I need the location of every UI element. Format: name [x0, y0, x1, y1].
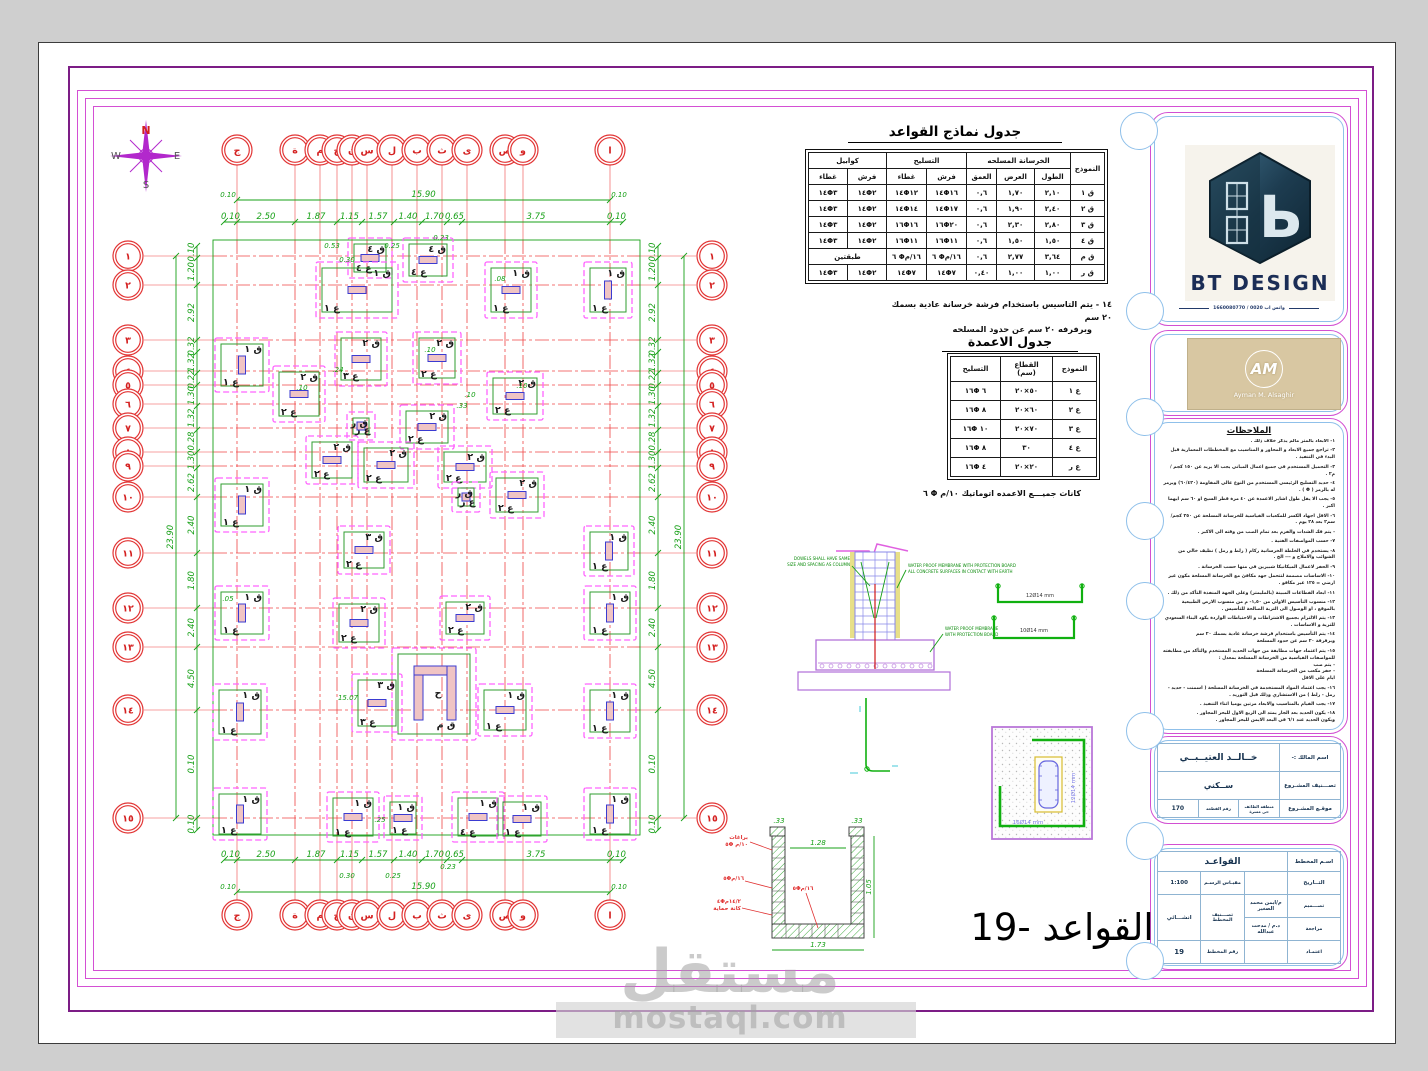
note-item: ١- الابعاد بالمتر مالم يذكر خلاف ذلك . — [1163, 439, 1335, 446]
svg-text:2.40: 2.40 — [187, 618, 197, 637]
svg-text:ث: ث — [437, 911, 447, 922]
table-row: ع ٣٧٠×٢٠١٦Φ ١٠ — [951, 420, 1097, 439]
svg-text:ب: ب — [412, 911, 422, 922]
table-cell: ٠,٦ — [967, 249, 997, 265]
table-cell: ١٦Φ١١ — [927, 233, 967, 249]
svg-text:0.25: 0.25 — [385, 872, 401, 880]
table-cell: ١٦Φ ٦ — [951, 382, 1001, 401]
svg-text:2.40: 2.40 — [648, 618, 658, 637]
table-cell: ٠,٦ — [967, 185, 997, 201]
column-header: فرش — [848, 169, 887, 185]
svg-text:ع ٢: ع ٢ — [281, 407, 297, 418]
grid-bubble: و — [508, 135, 538, 165]
svg-text:0.30: 0.30 — [339, 872, 355, 880]
grid-bubble: ٣ — [697, 325, 727, 355]
svg-text:١٠: ١٠ — [122, 493, 134, 504]
svg-text:ع ١: ع ١ — [592, 825, 608, 836]
owner-label: اسم المالك :- — [1280, 744, 1341, 772]
note-item: ٧- حسب المواصفات الفنية . — [1163, 539, 1335, 546]
table-cell: ٣,٦٤ — [1035, 249, 1071, 265]
svg-text:ق ٢: ق ٢ — [436, 338, 454, 349]
watermark-arabic: مستقل — [598, 942, 862, 1002]
svg-text:ث: ث — [437, 146, 447, 157]
grid-bubble: ١٣ — [113, 632, 143, 662]
table-cell: ١٤Φ٣ — [809, 233, 848, 249]
svg-text:ق ١: ق ١ — [611, 794, 629, 805]
table-cell: ١٦Φ٢٠ — [927, 217, 967, 233]
svg-text:0.10: 0.10 — [648, 243, 658, 262]
divider-line — [1179, 308, 1209, 309]
column-header: القطاع(سم) — [1001, 357, 1053, 382]
svg-text:ق ١: ق ١ — [244, 484, 262, 495]
svg-text:12Ø14 mm: 12Ø14 mm — [1026, 592, 1054, 599]
table-cell: ١٤Φ٧ — [927, 265, 967, 281]
table-cell: طبقتين — [809, 249, 887, 265]
svg-text:1.30: 1.30 — [187, 451, 197, 470]
svg-text:.25: .25 — [374, 816, 386, 824]
svg-text:ع ١: ع ١ — [592, 723, 608, 734]
plan-no-label: رقم المخطط — [1201, 941, 1244, 964]
table-cell: ٥٠×٢٠ — [1001, 382, 1053, 401]
notes-title: الملاحظات — [1151, 426, 1347, 436]
svg-text:ع ٢: ع ٢ — [495, 405, 511, 416]
foundation-pad: ق ٢ع ٢ — [306, 436, 358, 484]
table-cell: ١٤Φ٢ — [848, 265, 887, 281]
svg-text:0.22: 0.22 — [187, 370, 197, 389]
table-row: ع ٤٣٠١٦Φ ٨ — [951, 439, 1097, 458]
svg-text:ق ١: ق ١ — [522, 802, 540, 813]
grid-bubble: ج — [222, 135, 252, 165]
reviewer-name: د.م / مدحت عبدالله — [1244, 918, 1287, 941]
svg-text:2.40: 2.40 — [648, 516, 658, 535]
svg-text:2.62: 2.62 — [648, 473, 658, 492]
table-cell: ق ٣ — [1071, 217, 1105, 233]
foundations-table-title: جدول نماذج القواعد — [848, 124, 1062, 143]
table-cell: ١٦Φ ١٠ — [951, 420, 1001, 439]
svg-text:ق م: ق م — [437, 720, 456, 731]
grid-bubble: ١١ — [697, 538, 727, 568]
grid-bubble: ج — [222, 900, 252, 930]
table-cell: ١٦Φ ٨ — [951, 401, 1001, 420]
svg-text:2.92: 2.92 — [648, 303, 658, 322]
svg-text:0.10: 0.10 — [187, 815, 197, 834]
svg-text:ق ١: ق ١ — [242, 690, 260, 701]
svg-text:ق ٤: ق ٤ — [428, 244, 446, 255]
owner-info-table: اسم المالك :- خــالــد العتيــبــي تصـــ… — [1157, 743, 1341, 818]
svg-text:ع ١: ع ١ — [335, 827, 351, 838]
grid-bubble: ١ — [697, 241, 727, 271]
svg-text:ع ١: ع ١ — [223, 625, 239, 636]
svg-text:ع ٢: ع ٢ — [366, 473, 382, 484]
table-cell: ١,٠٠ — [1035, 265, 1071, 281]
table-cell: ٦ Φ١٦/م — [927, 249, 967, 265]
svg-text:ع ٢: ع ٢ — [408, 434, 424, 445]
svg-text:ق ١: ق ١ — [373, 268, 391, 279]
svg-text:3.75: 3.75 — [527, 850, 546, 860]
svg-text:1.32: 1.32 — [187, 353, 197, 372]
svg-text:ق ٢: ق ٢ — [467, 452, 485, 463]
note-item: ٨- يستخدم في الخلطة الخرسانية ركام ( زلط… — [1163, 549, 1335, 563]
note-item: ١٧- يجب القيام بالمناسيب والابعاد مرتين … — [1163, 702, 1335, 709]
divider-line — [1289, 308, 1319, 309]
column-header: التسليح — [951, 357, 1001, 382]
svg-text:ق ١: ق ١ — [512, 268, 530, 279]
svg-text:ح: ح — [435, 688, 442, 699]
svg-text:W: W — [111, 151, 121, 162]
svg-text:4.50: 4.50 — [648, 669, 658, 688]
bt-logo-box: Ь BT DESIGN — [1185, 145, 1335, 301]
svg-text:N: N — [141, 124, 150, 137]
svg-text:١: ١ — [125, 252, 131, 263]
foundation-note-14: ١٤ - يتم التاسيس باستخدام فرشة خرسانة عا… — [888, 298, 1112, 336]
bt-phone-row: واتس اب 0020 / 1660080770 — [1159, 306, 1339, 311]
compass-icon: NWES — [110, 120, 182, 192]
foundation-pad: حق م — [392, 648, 476, 740]
svg-text:0.10: 0.10 — [220, 191, 236, 199]
am-initials: AM — [1251, 360, 1278, 378]
svg-text:0.32: 0.32 — [187, 337, 197, 356]
am-logo-panel: AM Ayman M. Alsaghir — [1150, 330, 1348, 416]
column-header: العمق — [967, 169, 997, 185]
svg-text:.33: .33 — [456, 402, 467, 410]
svg-text:ق ١: ق ١ — [479, 798, 497, 809]
svg-text:ع ١: ع ١ — [592, 625, 608, 636]
svg-text:س: س — [360, 911, 373, 922]
svg-text:1.32: 1.32 — [648, 409, 658, 428]
foundation-pad: ق ٣ع ٣ — [352, 674, 402, 732]
table-cell: ١٤Φ١٦ — [927, 185, 967, 201]
scale-label: مقيـاس الرسـم — [1201, 872, 1244, 895]
note-item: ٩- الحفر لاعمال الميكانيكا شبيرين في منه… — [1163, 565, 1335, 572]
project-location-value: منطقة الطائف حي مسرة — [1239, 800, 1280, 818]
svg-text:0.10: 0.10 — [187, 243, 197, 262]
svg-text:1.20: 1.20 — [648, 262, 658, 281]
svg-text:ع ١: ع ١ — [221, 725, 237, 736]
svg-text:٦: ٦ — [709, 400, 715, 411]
svg-text:1.57: 1.57 — [369, 850, 389, 860]
svg-text:4.50: 4.50 — [187, 669, 197, 688]
svg-text:ع ٢: ع ٢ — [346, 559, 362, 570]
svg-text:0.10: 0.10 — [648, 755, 658, 774]
svg-text:1.32: 1.32 — [187, 409, 197, 428]
foundations-table: النموذجالخرسانة المسلحهالتسليحكوابيلالطو… — [808, 152, 1105, 281]
foundation-pad: ق ١ع ١ — [215, 338, 269, 392]
foundation-pad: ق ٢ع ٢ — [490, 472, 544, 518]
plan-info-panel: اسـم المخطط القواعـد التــاريخ مقيـاس ال… — [1150, 844, 1348, 970]
svg-text:ق ١: ق ١ — [397, 802, 415, 813]
table-row: ع ر٢٠×٢٠١٦Φ ٤ — [951, 458, 1097, 477]
svg-text:0.10: 0.10 — [611, 191, 627, 199]
svg-text:ق ٢: ق ٢ — [519, 478, 537, 489]
note-item: ١٠- الاساسات مصممة لتتحمل جهد مكافئ مع ا… — [1163, 574, 1335, 588]
svg-text:ا: ا — [608, 146, 611, 157]
column-header: غطاء — [809, 169, 848, 185]
svg-text:23.90: 23.90 — [674, 525, 684, 549]
svg-text:ع ١: ع ١ — [392, 825, 408, 836]
svg-text:ق ١: ق ١ — [609, 532, 627, 543]
svg-text:١٣: ١٣ — [122, 643, 134, 654]
scallop-circle — [1120, 112, 1158, 150]
svg-text:٩: ٩ — [125, 462, 131, 473]
grid-bubble: ١١ — [113, 538, 143, 568]
column-header: النموذج — [1071, 153, 1105, 185]
svg-text:0.10: 0.10 — [220, 883, 236, 891]
scallop-circle — [1126, 942, 1164, 980]
svg-text:WATER PROOF MEMBRANE: WATER PROOF MEMBRANE — [945, 626, 999, 631]
tank-section-detail: 1.281.051.73.33.33براغات٥Φ ١٠/م٥Φ١٦/م٤Φ١… — [713, 817, 874, 950]
note-item: ١٥- يتم اعتماد جهات مطابقة من جهات الحدي… — [1163, 649, 1335, 683]
svg-text:و: و — [519, 146, 526, 157]
column-header: كوابيل — [809, 153, 887, 169]
svg-text:1.87: 1.87 — [307, 850, 327, 860]
svg-text:١٥: ١٥ — [706, 814, 718, 825]
review-label: مراجعة — [1288, 918, 1341, 941]
svg-text:10Ø14 mm: 10Ø14 mm — [1020, 627, 1048, 634]
svg-text:ل: ل — [388, 146, 396, 157]
svg-text:٦: ٦ — [125, 400, 131, 411]
foundation-pad: ق ١ع ١ — [327, 792, 379, 842]
date-label: التــاريخ — [1288, 872, 1341, 895]
svg-text:ع ٢: ع ٢ — [498, 503, 514, 514]
date-value — [1244, 872, 1287, 895]
table-cell: ٠,٤٠ — [967, 265, 997, 281]
table-cell: ع ٢ — [1053, 401, 1097, 420]
table-row: ق ١٢,١٠١,٧٠٠,٦١٤Φ١٦١٤Φ١٢١٤Φ٢١٤Φ٣ — [809, 185, 1105, 201]
svg-text:0.53: 0.53 — [324, 242, 340, 250]
svg-text:0.10: 0.10 — [607, 212, 626, 222]
table-cell: ق ٤ — [1071, 233, 1105, 249]
svg-text:0.32: 0.32 — [648, 337, 658, 356]
foundation-pad: ق ٢ع ٢ — [358, 442, 414, 488]
svg-text:ق ٢: ق ٢ — [362, 338, 380, 349]
grid-bubble: ١٥ — [113, 803, 143, 833]
foundation-pad: ق ٢ع ٢ — [333, 598, 385, 648]
svg-text:.33: .33 — [773, 817, 784, 825]
grid-bubble: ١٥ — [697, 803, 727, 833]
svg-text:١٢: ١٢ — [122, 604, 134, 615]
svg-text:0.30: 0.30 — [339, 256, 355, 264]
svg-text:ب: ب — [412, 146, 422, 157]
svg-text:٧: ٧ — [125, 424, 131, 435]
svg-text:1.40: 1.40 — [399, 212, 418, 222]
plan-info-table: اسـم المخطط القواعـد التــاريخ مقيـاس ال… — [1157, 851, 1341, 964]
svg-text:ع ١: ع ١ — [592, 303, 608, 314]
scallop-circle — [1126, 292, 1164, 330]
foundation-pad: ق ١ع ١ — [213, 788, 267, 840]
svg-text:ى: ى — [463, 146, 472, 157]
grid-bubble: ٩ — [697, 451, 727, 481]
column-header: الطول — [1035, 169, 1071, 185]
table-cell: ١٤Φ٢ — [848, 217, 887, 233]
grid-bubble: ١٣ — [697, 632, 727, 662]
svg-text:12Ø14 mm: 12Ø14 mm — [1070, 773, 1077, 804]
columns-table: النموذجالقطاع(سم)التسليحع ١٥٠×٢٠١٦Φ ٦ع ٢… — [950, 356, 1097, 477]
svg-text:ع ٢: ع ٢ — [341, 633, 357, 644]
am-name: Ayman M. Alsaghir — [1234, 391, 1294, 399]
svg-text:ع ١: ع ١ — [223, 517, 239, 528]
svg-text:ق ١: ق ١ — [244, 344, 262, 355]
parcel-label: رقم القطعة — [1198, 800, 1239, 818]
table-cell: ٧٠×٢٠ — [1001, 420, 1053, 439]
table-cell: ٦٠×٢٠ — [1001, 401, 1053, 420]
note-item: ١٢- منسوب التأسيس الاولي من ١,٥٠- م من م… — [1163, 600, 1335, 614]
table-cell: ١٤Φ٧ — [887, 265, 927, 281]
svg-text:ق ٢: ق ٢ — [360, 604, 378, 615]
grid-bubble: ١٢ — [113, 593, 143, 623]
svg-text:ق ٣: ق ٣ — [377, 680, 395, 691]
svg-text:1.30: 1.30 — [648, 451, 658, 470]
svg-text:1.15: 1.15 — [340, 850, 359, 860]
svg-text:DOWELS SHALL HAVE SAME: DOWELS SHALL HAVE SAME — [794, 556, 851, 561]
designer-name: م/ايمن محمد الصغير — [1244, 895, 1287, 918]
svg-text:ع ٣: ع ٣ — [360, 717, 376, 728]
svg-text:2.62: 2.62 — [187, 473, 197, 492]
note-item: ٢- تراجع جميع الابعاد و المحاور و المناس… — [1163, 448, 1335, 462]
table-row: ع ١٥٠×٢٠١٦Φ ٦ — [951, 382, 1097, 401]
foundation-pads: ق ٤ع ٤ق ٤ع ٤ق ١ع ١ق ١ع ١ق ١ع ١ق ١ع ١ق ٢ع… — [213, 238, 636, 842]
svg-text:2.50: 2.50 — [257, 850, 276, 860]
svg-text:0.10: 0.10 — [648, 815, 658, 834]
svg-text:1.70: 1.70 — [425, 850, 444, 860]
column-header: الخرسانة المسلحه — [967, 153, 1071, 169]
svg-text:.10: .10 — [464, 391, 476, 399]
svg-text:ق ٤: ق ٤ — [367, 244, 385, 255]
svg-text:ع ٢: ع ٢ — [314, 469, 330, 480]
svg-text:ع ١: ع ١ — [493, 303, 509, 314]
grid-bubble: ١٢ — [697, 593, 727, 623]
svg-text:0.23: 0.23 — [433, 234, 449, 242]
svg-text:3.75: 3.75 — [527, 212, 546, 222]
svg-text:١٣: ١٣ — [706, 643, 718, 654]
table-cell: ع ٤ — [1053, 439, 1097, 458]
foundation-pad: ق ١ع ١ — [584, 262, 632, 318]
svg-text:.08: .08 — [494, 275, 506, 283]
design-label: تصـــميم — [1288, 895, 1341, 918]
grid-bubble: و — [508, 900, 538, 930]
project-class-label: تصـــنيف المشـروع — [1280, 772, 1341, 800]
notes-list: ١- الابعاد بالمتر مالم يذكر خلاف ذلك .٢-… — [1163, 439, 1335, 727]
table-cell: ق ١ — [1071, 185, 1105, 201]
svg-text:15.07: 15.07 — [338, 694, 359, 702]
table-cell: ٠,٦ — [967, 217, 997, 233]
grid-bubble: ١ — [113, 241, 143, 271]
svg-text:.05: .05 — [222, 595, 234, 603]
foundation-pad: ق رع ر — [347, 412, 375, 440]
note-item: ١١- ابعاد القطاعات المبينة (بالمليمتر) و… — [1163, 591, 1335, 598]
column-header: التسليح — [887, 153, 967, 169]
note-item: ٥- يجب الا يقل طول اشاير الاعمدة عن ٤٠ م… — [1163, 497, 1335, 511]
scallop-circle — [1126, 582, 1164, 620]
note-item: ١٤- يتم التأسيس باستخدام فرشة خرسانة عاد… — [1163, 632, 1335, 646]
table-row: ع ٢٦٠×٢٠١٦Φ ٨ — [951, 401, 1097, 420]
svg-text:1.20: 1.20 — [187, 262, 197, 281]
plan-class-label: تصـــنيف المخطط — [1201, 895, 1244, 941]
svg-text:ة: ة — [292, 911, 298, 922]
svg-text:0.25: 0.25 — [384, 242, 400, 250]
columns-table-title: جدول الاعمدة — [942, 334, 1078, 352]
grid-bubbles: ججةةممخخننسسللببثثىىصصوواا١١٢٢٣٣٤٤٥٥٦٦٧٧… — [113, 135, 727, 930]
table-cell: ع ٣ — [1053, 420, 1097, 439]
cad-sheet-page: { "compass": {"n":"N","s":"S","e":"E","w… — [0, 0, 1428, 1071]
owner-info-panel: اسم المالك :- خــالــد العتيــبــي تصـــ… — [1150, 736, 1348, 824]
scale-value: 1:100 — [1158, 872, 1201, 895]
svg-text:ع ١: ع ١ — [221, 825, 237, 836]
svg-text:0.65: 0.65 — [445, 850, 464, 860]
svg-text:ع ٤: ع ٤ — [460, 827, 476, 838]
svg-text:٢: ٢ — [709, 281, 715, 292]
svg-text:0.28: 0.28 — [187, 431, 197, 451]
svg-text:1.30: 1.30 — [187, 386, 197, 405]
grid-bubble: ى — [452, 900, 482, 930]
foundation-pad: ق ٢ع ٢ — [487, 372, 543, 420]
table-cell: ١,٥٠ — [1035, 233, 1071, 249]
table-cell: ٢,٨٠ — [1035, 217, 1071, 233]
grid-bubble: ٢ — [113, 270, 143, 300]
stirrups-note: كانات جميـــع الاعمده اتوماتيك ٦ Φ ١٠/م — [886, 489, 1118, 498]
note-item: ٣- التحميل المستخدم في جميع اعمال المبان… — [1163, 465, 1335, 479]
stirrups-note-value: ٦ Φ ١٠/م — [923, 489, 959, 498]
table-cell: ٦ Φ١٦/م — [887, 249, 927, 265]
scallop-circle — [1126, 502, 1164, 540]
table-row: ق م٣,٦٤٢,٧٧٠,٦٦ Φ١٦/م٦ Φ١٦/مطبقتين — [809, 249, 1105, 265]
svg-text:كانة حماية: كانة حماية — [713, 905, 741, 912]
table-row: ق ٤١,٥٠١,٥٠٠,٦١٦Φ١١١٦Φ١١١٤Φ٢١٤Φ٣ — [809, 233, 1105, 249]
svg-text:ق ٣: ق ٣ — [365, 532, 383, 543]
column-header: غطاء — [887, 169, 927, 185]
approve-label: اعتمـاد — [1288, 941, 1341, 964]
svg-text:1.80: 1.80 — [648, 571, 658, 590]
svg-text:E: E — [174, 151, 180, 162]
svg-text:ق ٢: ق ٢ — [333, 442, 351, 453]
foundation-pad: ق ١ع ٤ — [452, 792, 504, 842]
plan-name-value: القواعـد — [1158, 852, 1288, 872]
table-cell: ١٦Φ ٤ — [951, 458, 1001, 477]
svg-text:.24: .24 — [332, 366, 343, 374]
svg-text:0.23: 0.23 — [440, 863, 456, 871]
svg-text:ة: ة — [292, 146, 298, 157]
grid-bubble: ى — [452, 135, 482, 165]
table-cell: ١٤Φ١٧ — [927, 201, 967, 217]
svg-text:ق ٢: ق ٢ — [389, 448, 407, 459]
am-logo-icon: AM — [1245, 350, 1283, 388]
svg-text:ع ٢: ع ٢ — [421, 369, 437, 380]
scallop-circle — [1126, 822, 1164, 860]
svg-text:1.15: 1.15 — [340, 212, 359, 222]
notes-panel: الملاحظات ١- الابعاد بالمتر مالم يذكر خل… — [1150, 418, 1348, 734]
svg-text:ج: ج — [234, 146, 241, 157]
svg-text:ق ٢: ق ٢ — [429, 411, 447, 422]
table-row: ق ٣٢,٨٠٢,٣٠٠,٦١٦Φ٢٠١٦Φ١٦١٤Φ٢١٤Φ٣ — [809, 217, 1105, 233]
svg-text:0.10: 0.10 — [607, 850, 626, 860]
table-cell: ٢,٧٧ — [997, 249, 1035, 265]
table-cell: ١٤Φ٢ — [848, 233, 887, 249]
svg-text:0.10: 0.10 — [611, 883, 627, 891]
grid-bubble: ٩ — [113, 451, 143, 481]
table-cell: ٢٠×٢٠ — [1001, 458, 1053, 477]
table-cell: ١٤Φ٣ — [809, 201, 848, 217]
note-item: ١٦- يجب اعتماد المواد المستخدمة في الخرس… — [1163, 686, 1335, 700]
svg-text:ق ١: ق ١ — [611, 690, 629, 701]
table-cell: ١٤Φ٣ — [809, 265, 848, 281]
note-item: ١٣- يتم الالتزام بجميع الاشتراطات و الاح… — [1163, 616, 1335, 630]
scallop-circle — [1126, 398, 1164, 436]
svg-text:2.40: 2.40 — [187, 516, 197, 535]
foundation-pad: ق ١ع ١ — [215, 478, 269, 532]
column-header: فرش — [927, 169, 967, 185]
svg-text:ق ١: ق ١ — [244, 592, 262, 603]
svg-text:WATER PROOF MEMBRANE WITH PROT: WATER PROOF MEMBRANE WITH PROTECTION BOA… — [908, 563, 1016, 568]
table-cell: ٣٠ — [1001, 439, 1053, 458]
